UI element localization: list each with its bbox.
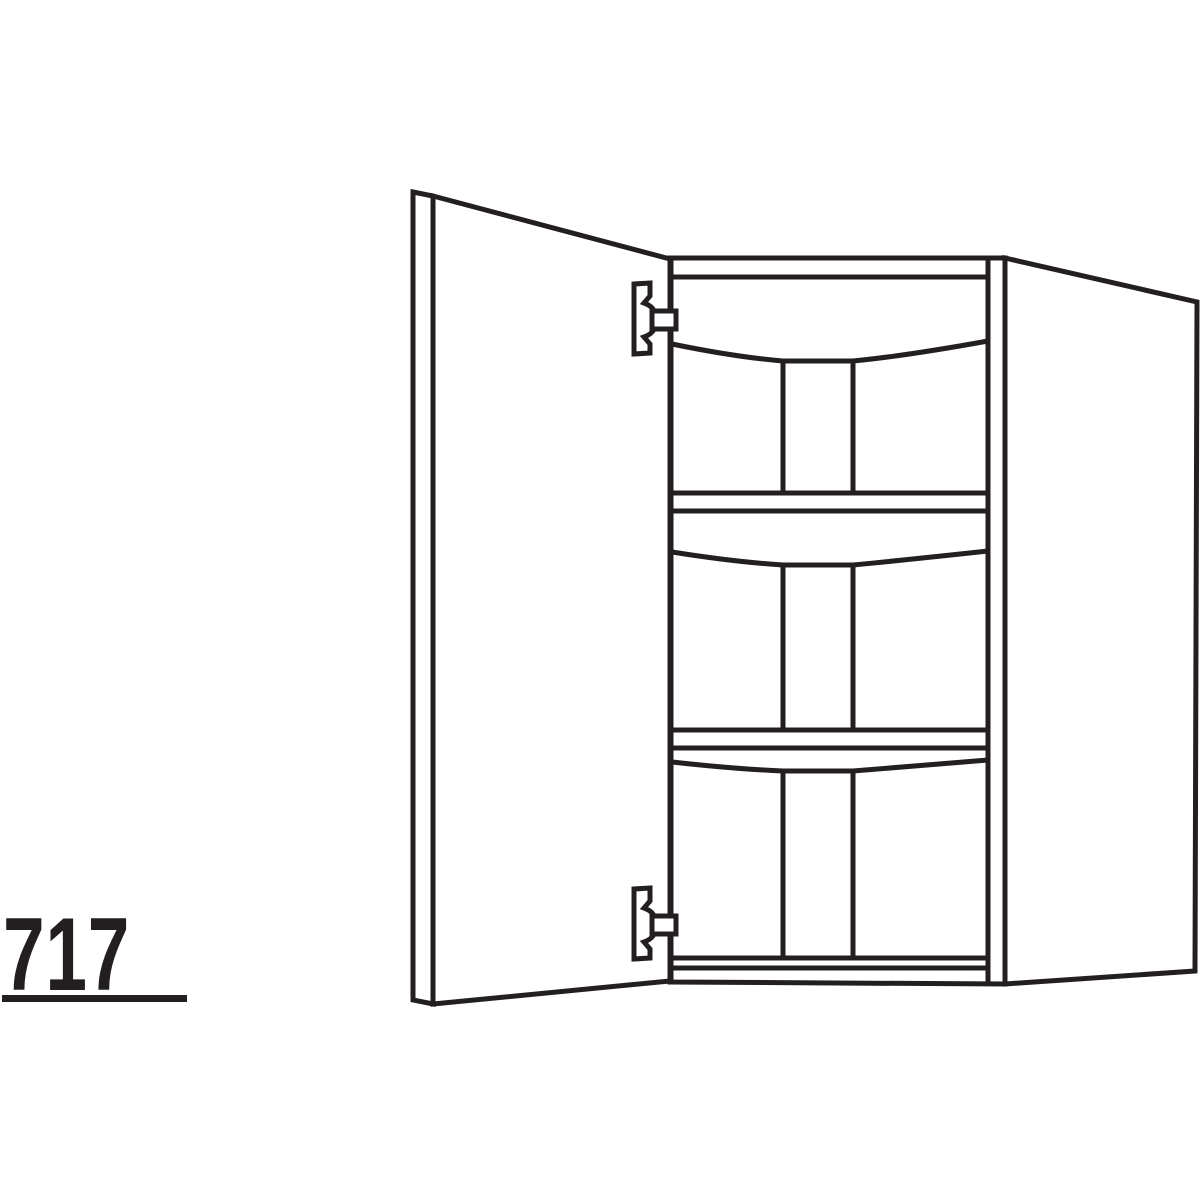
hinge-arm <box>652 311 676 329</box>
cabinet-diagram: 717 <box>0 0 1200 1200</box>
door-edge-face <box>413 192 433 1004</box>
cabinet-side-panel <box>1005 258 1197 984</box>
dimension-underline <box>2 995 187 1002</box>
diagram-canvas: 717 <box>0 0 1200 1200</box>
hinge-arm <box>652 916 676 934</box>
carcass-front-face <box>670 258 1005 984</box>
cabinet-door <box>413 192 670 1004</box>
dimension-label-group: 717 <box>2 897 187 1013</box>
cabinet-carcass <box>670 258 1197 984</box>
